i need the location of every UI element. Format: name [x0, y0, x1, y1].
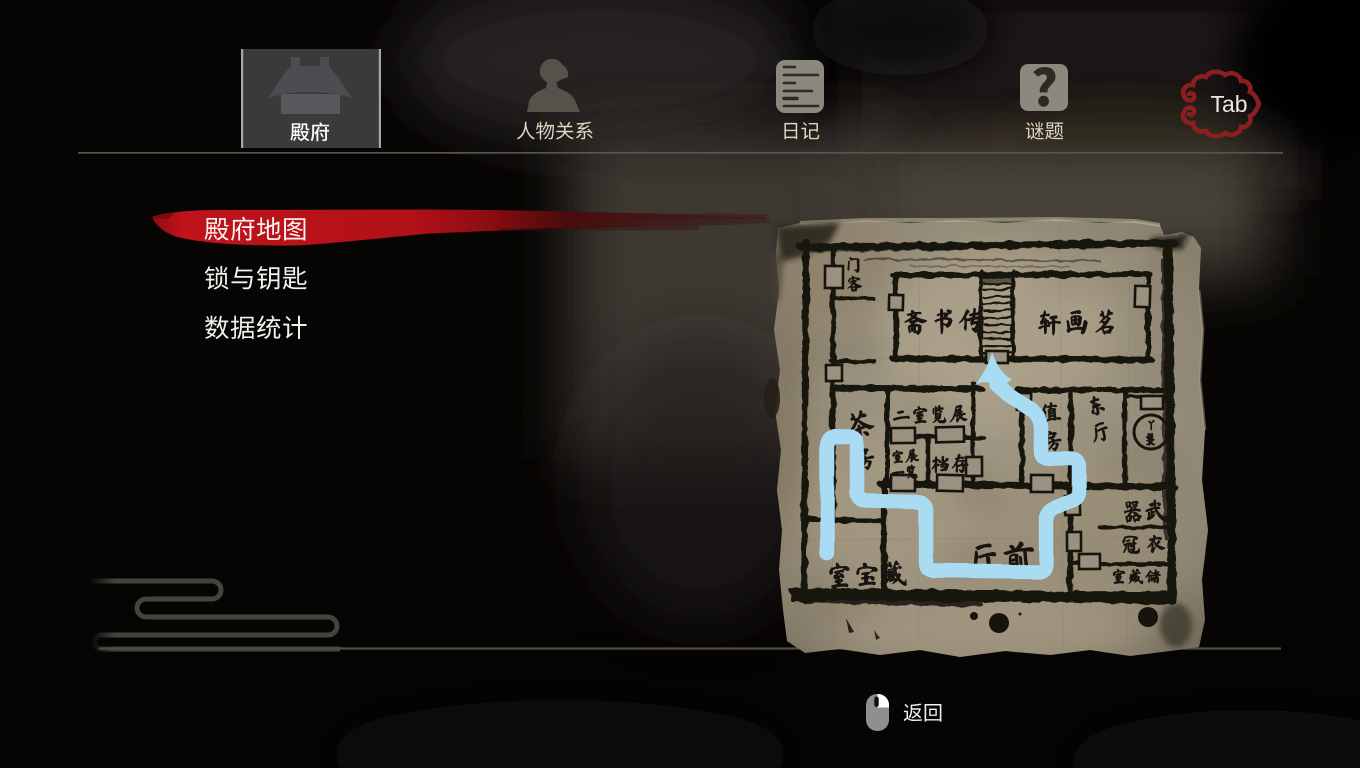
svg-text:Tab: Tab — [1210, 91, 1247, 117]
